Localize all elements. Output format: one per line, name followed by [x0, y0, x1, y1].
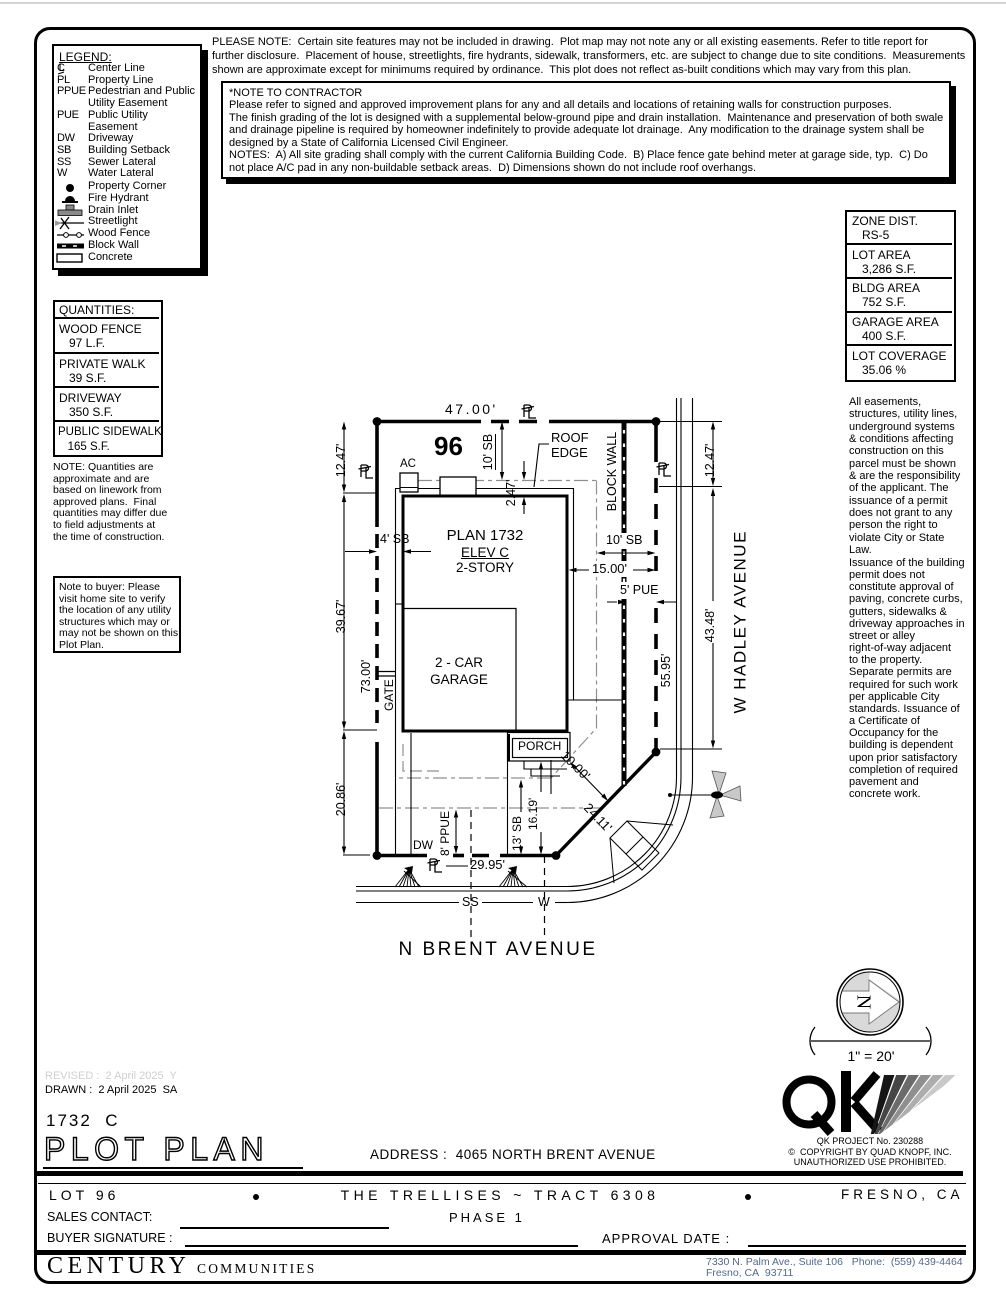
svg-text:N: N	[852, 995, 874, 1009]
